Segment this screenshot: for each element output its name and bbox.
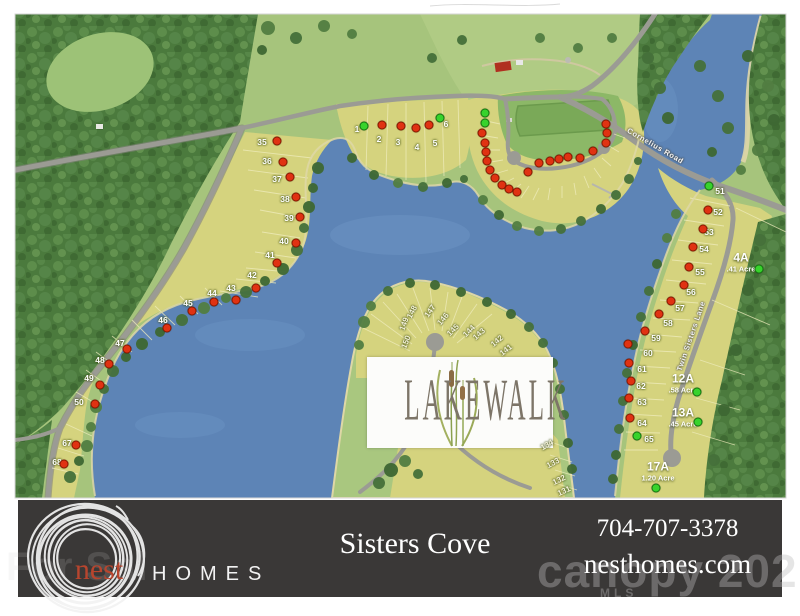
community-name: Sisters Cove (275, 527, 555, 561)
phone-number: 704-707-3378 (560, 515, 775, 543)
brand-name: nest (64, 553, 134, 587)
brand-suffix: HOMES (152, 563, 270, 586)
watermark-mls: MLS (600, 586, 637, 600)
lakewalk-logo: LAKEWALK (367, 357, 553, 448)
flyer-page: LAKEWALK Cornelius Road Twin Sisters Lan… (0, 0, 800, 616)
website-url: nesthomes.com (560, 549, 775, 580)
logo-title: LAKEWALK (404, 367, 516, 435)
